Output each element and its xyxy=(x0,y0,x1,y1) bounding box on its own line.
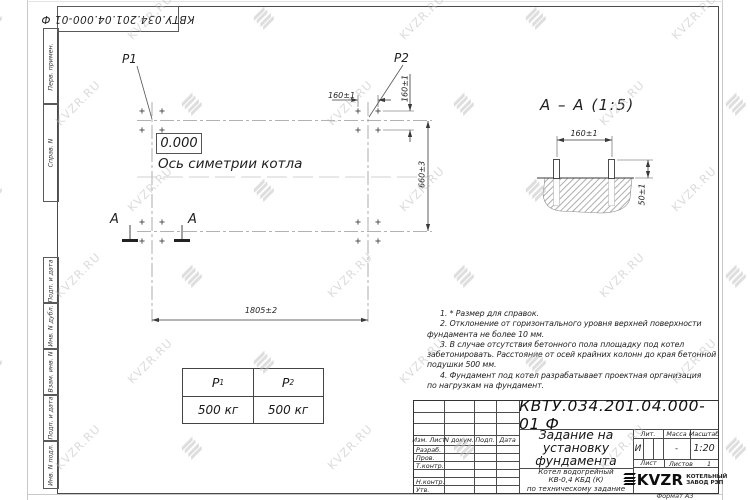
tb-row-tkontr: Т.контр. xyxy=(416,462,444,470)
load-table-header-p1: P1 xyxy=(183,369,253,396)
tb-row-utv: Утв. xyxy=(416,486,429,494)
title-block: Изм. Лист N докум. Подп. Дата Разраб. Пр… xyxy=(413,400,719,494)
tb-scale-label: Масштаб xyxy=(690,429,718,438)
kvzr-logo-text: KVZR xyxy=(637,471,683,489)
sidebar-cell-perv-primen: Перв. примен. xyxy=(43,28,59,105)
note-line: 2. Отклонение от горизонтального уровня … xyxy=(427,319,719,329)
section-letter-right: А xyxy=(188,212,197,227)
tb-header-n-dokum: N докум. xyxy=(444,435,474,445)
tb-row-razrab: Разраб. xyxy=(416,446,441,454)
section-cut-marks xyxy=(122,225,190,241)
note-line: по нагрузкам на фундамент. xyxy=(427,381,719,391)
note-line: 1. * Размер для справок. xyxy=(427,309,719,319)
tb-lit-label: Лит. xyxy=(633,429,663,438)
load-table-value-p2: 500 кг xyxy=(253,396,323,423)
dim-bolt-spacing-v: 160±1 xyxy=(401,74,410,104)
symmetry-axis-label: Ось симетрии котла xyxy=(158,156,302,172)
tb-sheet-label: Лист xyxy=(633,459,664,467)
note-line: фундамента не более 10 мм. xyxy=(427,330,719,340)
tb-scale-value: 1:20 xyxy=(690,438,718,459)
tb-logo-area: KVZR КОТЕЛЬНЫЙ ЗАВОД РЭП xyxy=(633,467,718,493)
tb-subtitle: Котел водогрейный КВ-0,4 КБД (К) по техн… xyxy=(519,468,633,493)
tb-company-name: КОТЕЛЬНЫЙ ЗАВОД РЭП xyxy=(686,474,727,487)
sidebar-cell-inv-podl: Инв. N подл. xyxy=(43,440,59,489)
note-line: подушки 500 мм. xyxy=(427,360,719,370)
tb-doc-number: КВТУ.034.201.04.000-01 Ф xyxy=(519,401,718,429)
load-table-value-p1: 500 кг xyxy=(183,396,253,423)
dim-foundation-length: 1805±2 xyxy=(236,306,286,315)
sidebar-cell-vzam-inv: Взам. инв. N xyxy=(43,348,59,396)
elevation-mark: 0.000 xyxy=(156,133,202,154)
section-view-geometry xyxy=(537,160,634,214)
load-table-header-p2: P2 xyxy=(253,369,323,396)
note-line: 3. В случае отсутствия бетонного пола пл… xyxy=(427,340,719,350)
kvzr-spring-icon xyxy=(624,473,635,487)
section-dim-height: 50±1 xyxy=(638,180,647,210)
tb-row-prov: Пров. xyxy=(416,454,435,462)
tb-header-izm-list: Изм. Лист xyxy=(414,435,444,445)
technical-notes: 1. * Размер для справок. 2. Отклонение о… xyxy=(427,309,719,391)
tb-mass-label: Масса xyxy=(663,429,690,438)
anchor-bolt-points xyxy=(139,108,380,243)
point-p2-label: P2 xyxy=(394,51,409,65)
section-dim-spacing: 160±1 xyxy=(559,129,609,138)
sidebar-cell-inv-dubl: Инв. N дубл. xyxy=(43,302,59,350)
tb-lit-value: И xyxy=(633,438,643,459)
format-label: Формат А3 xyxy=(630,492,720,500)
dim-bolt-spacing-h: 160±1 xyxy=(328,91,355,100)
section-view-title: А – А (1:5) xyxy=(540,96,635,114)
drawing-sheet: { "colors": {"paper":"#ffffff","ink":"#3… xyxy=(0,0,750,500)
sidebar-cell-sprav-n: Справ. N xyxy=(43,103,59,202)
tb-header-podp: Подп. xyxy=(474,435,496,445)
tb-header-data: Дата xyxy=(496,435,519,445)
sidebar-cell-podp-data-2: Подп. и дата xyxy=(43,394,59,442)
edge-stamp-doc-number: КВТУ.034.201.04.000-01 Ф xyxy=(57,6,179,32)
sidebar-cell-podp-data-1: Подп. и дата xyxy=(43,257,59,304)
tb-row-nkontr: Н.контр. xyxy=(416,478,445,486)
section-letter-left: А xyxy=(110,212,119,227)
point-p1-label: P1 xyxy=(122,52,137,66)
tb-title: Задание на установку фундамента xyxy=(519,429,633,468)
tb-mass-value: - xyxy=(663,438,690,459)
dim-foundation-width: 660±3 xyxy=(418,160,427,190)
note-line: забетонировать. Расстояние от осей крайн… xyxy=(427,350,719,360)
leader-lines xyxy=(137,65,403,119)
load-table: P1 P2 500 кг 500 кг xyxy=(182,368,324,424)
note-line: 4. Фундамент под котел разрабатывает про… xyxy=(427,371,719,381)
